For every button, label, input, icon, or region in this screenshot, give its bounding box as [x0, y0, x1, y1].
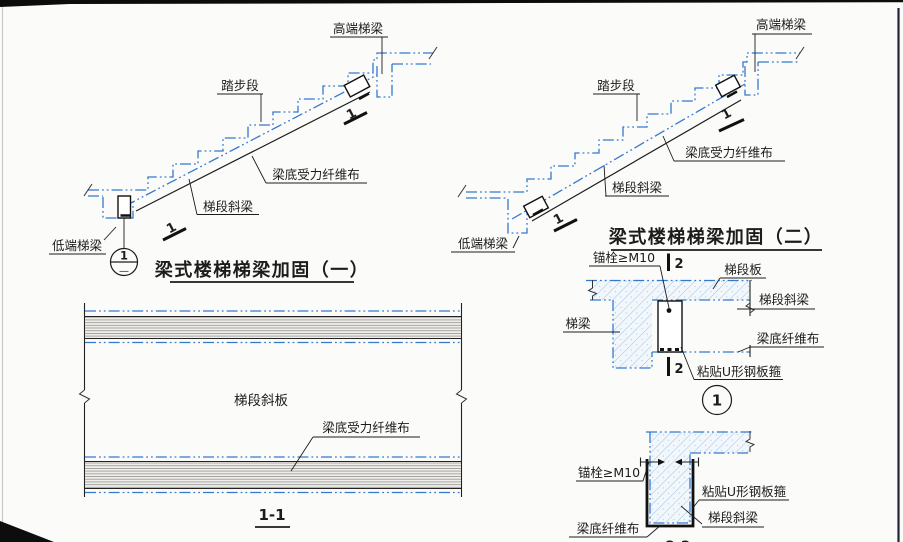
diagram-stair-1: 1 1 高端梯梁 踏步段 梁底受力纤维布 梯段斜梁 低端梯梁 1 — 梁式楼梯梯… [49, 21, 437, 282]
dt1-label-anchor: 锚栓≥M10 [593, 250, 655, 265]
stair2-section-box-top [716, 75, 741, 96]
stair1-label-low-beam: 低端梯梁 [52, 238, 103, 253]
s11-label-fiber: 梁底受力纤维布 [322, 420, 410, 435]
s22-label-fiber: 梁底纤维布 [577, 521, 640, 536]
dt1-anchor-dot [667, 308, 672, 313]
s22-slab-hatch [690, 432, 750, 453]
stair1-section-number-top: 1 [344, 106, 359, 123]
stair2-steps-outline [466, 53, 800, 192]
stair2-break-top [796, 47, 804, 59]
stair1-label-high-beam: 高端梯梁 [333, 21, 384, 36]
s11-top-band-hatch [85, 317, 461, 338]
page-top-edge [0, 0, 903, 7]
stair1-soffit-line [125, 75, 377, 206]
stair2-break-bottom [458, 185, 466, 197]
stair1-label-fiber: 梁底受力纤维布 [272, 167, 360, 182]
dt1-section-number-bottom: 2 [674, 362, 683, 377]
stair2-section-cut-top [719, 120, 744, 132]
stair2-leader-incline-beam [604, 165, 606, 196]
stair1-callout-sheet: — [119, 266, 129, 277]
s22-beam-hatch [650, 432, 690, 523]
section-1-1: 梯段斜板 梁底受力纤维布 1-1 [80, 303, 467, 527]
stair2-label-low-beam: 低端梯梁 [458, 236, 509, 251]
stair2-label-tread: 踏步段 [597, 78, 635, 93]
s11-left-break [80, 390, 90, 403]
stair1-label-tread: 踏步段 [221, 78, 259, 93]
dt1-label-fiber: 梁底纤维布 [757, 331, 820, 346]
s22-label-anchor: 锚栓≥M10 [578, 465, 640, 480]
dt1-beam-hatch [613, 300, 652, 368]
stair1-leader-fiber [252, 156, 266, 183]
stair2-label-incline-beam: 梯段斜梁 [612, 180, 663, 195]
dt1-leader-fiber [738, 347, 750, 352]
dt1-label-u-plate: 粘贴U形钢板箍 [697, 364, 782, 379]
dt1-label-incline-beam: 梯段斜梁 [759, 292, 810, 307]
stair2-section-number-top: 1 [719, 106, 734, 123]
diagram-stair-2: 1 1 高端梯梁 踏步段 梁底受力纤维布 梯段斜梁 低端梯梁 梁式楼梯梯梁加固（… [451, 17, 823, 252]
stair2-high-beam-outline [745, 62, 798, 95]
stair2-label-high-beam: 高端梯梁 [756, 17, 807, 32]
dt1-callout-number: 1 [712, 392, 722, 410]
detail-1: 锚栓≥M10 2 2 梯段板 梯段斜梁 梯梁 梁底纤维布 粘贴U形钢板箍 1 [563, 250, 824, 415]
page-corner-fold [0, 521, 54, 542]
section-2-2: 锚栓≥M10 粘贴U形钢板箍 梯段斜梁 梁底纤维布 2-2 [569, 431, 789, 542]
stair1-high-beam-outline [377, 64, 431, 97]
dt1-label-beam: 梯梁 [565, 316, 591, 331]
stair1-section-number-bottom: 1 [164, 220, 179, 237]
dt1-section-number-top: 2 [674, 257, 683, 272]
stair1-steps-outline [88, 53, 433, 190]
drawing-sheet: 1 1 高端梯梁 踏步段 梁底受力纤维布 梯段斜梁 低端梯梁 1 — 梁式楼梯梯… [0, 0, 903, 542]
s22-label-incline-beam: 梯段斜梁 [708, 510, 759, 525]
stair1-leader-incline-beam [189, 179, 197, 215]
stair2-title: 梁式楼梯梯梁加固（二） [608, 226, 824, 248]
s11-bottom-band-hatch [85, 463, 461, 489]
stair1-title: 梁式楼梯梯梁加固（一） [154, 259, 370, 281]
stair1-callout-number: 1 [120, 249, 128, 263]
s11-title: 1-1 [258, 506, 285, 524]
dt1-slab-hatch [590, 281, 750, 301]
s22-label-u-plate: 粘贴U形钢板箍 [702, 484, 787, 499]
stair-reinforcement-drawing: 1 1 高端梯梁 踏步段 梁底受力纤维布 梯段斜梁 低端梯梁 1 — 梁式楼梯梯… [0, 0, 903, 542]
stair1-label-incline-beam: 梯段斜梁 [203, 199, 254, 214]
stair1-leader-low-beam [104, 227, 116, 240]
stair2-label-fiber: 梁底受力纤维布 [685, 145, 773, 160]
stair2-leader-low-beam [513, 236, 519, 248]
dt1-label-slab: 梯段板 [724, 262, 762, 277]
s11-label-slab: 梯段斜板 [234, 393, 288, 409]
stair1-fiber-line [136, 92, 370, 211]
s11-right-break [457, 390, 467, 403]
